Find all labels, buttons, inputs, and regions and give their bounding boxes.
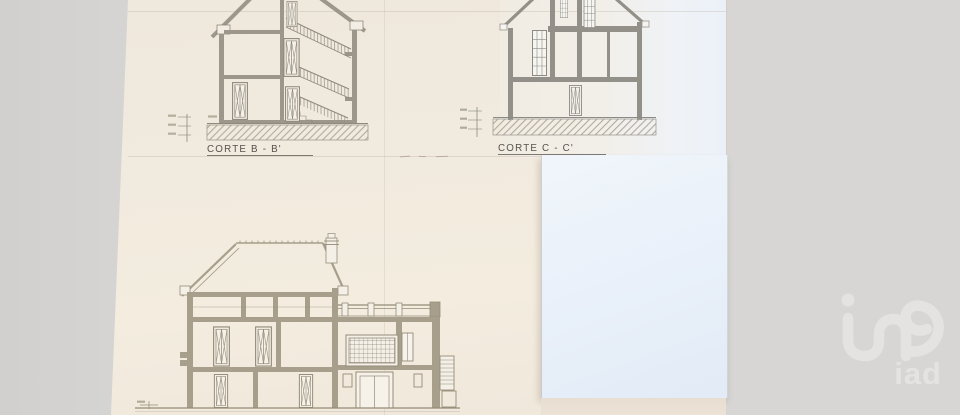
annex bbox=[338, 302, 456, 408]
corte-c-label: CORTE C - C' bbox=[498, 143, 574, 154]
iad-watermark-text: iad bbox=[874, 358, 942, 389]
garage-door bbox=[356, 372, 393, 408]
corte-b-foundation bbox=[207, 124, 368, 141]
corte-c-level-marker bbox=[460, 107, 482, 137]
corte-b-label: CORTE B - B' bbox=[207, 144, 282, 155]
large-section-roof bbox=[180, 234, 348, 299]
external-stairs bbox=[440, 356, 456, 407]
large-section-ground bbox=[135, 408, 460, 412]
corte-b-drawing: CORTE B - B' bbox=[150, 0, 450, 163]
chimney bbox=[326, 238, 337, 263]
paper-sheet-under-corner bbox=[541, 398, 726, 415]
corte-c-roof bbox=[500, 0, 649, 30]
corte-c-door bbox=[569, 85, 581, 115]
annex-railing bbox=[338, 302, 440, 317]
corte-b-doors bbox=[233, 1, 300, 121]
corte-c-drawing: CORTE C - C' bbox=[460, 0, 670, 162]
corte-c-windows bbox=[533, 0, 595, 76]
pencil-marks bbox=[400, 148, 460, 166]
large-section-drawing bbox=[130, 230, 465, 415]
photo-of-architectural-plans: CORTE B - B' bbox=[0, 0, 960, 415]
corte-c-foundation bbox=[493, 118, 656, 136]
paper-sheet-bottom-right-white bbox=[541, 155, 728, 398]
